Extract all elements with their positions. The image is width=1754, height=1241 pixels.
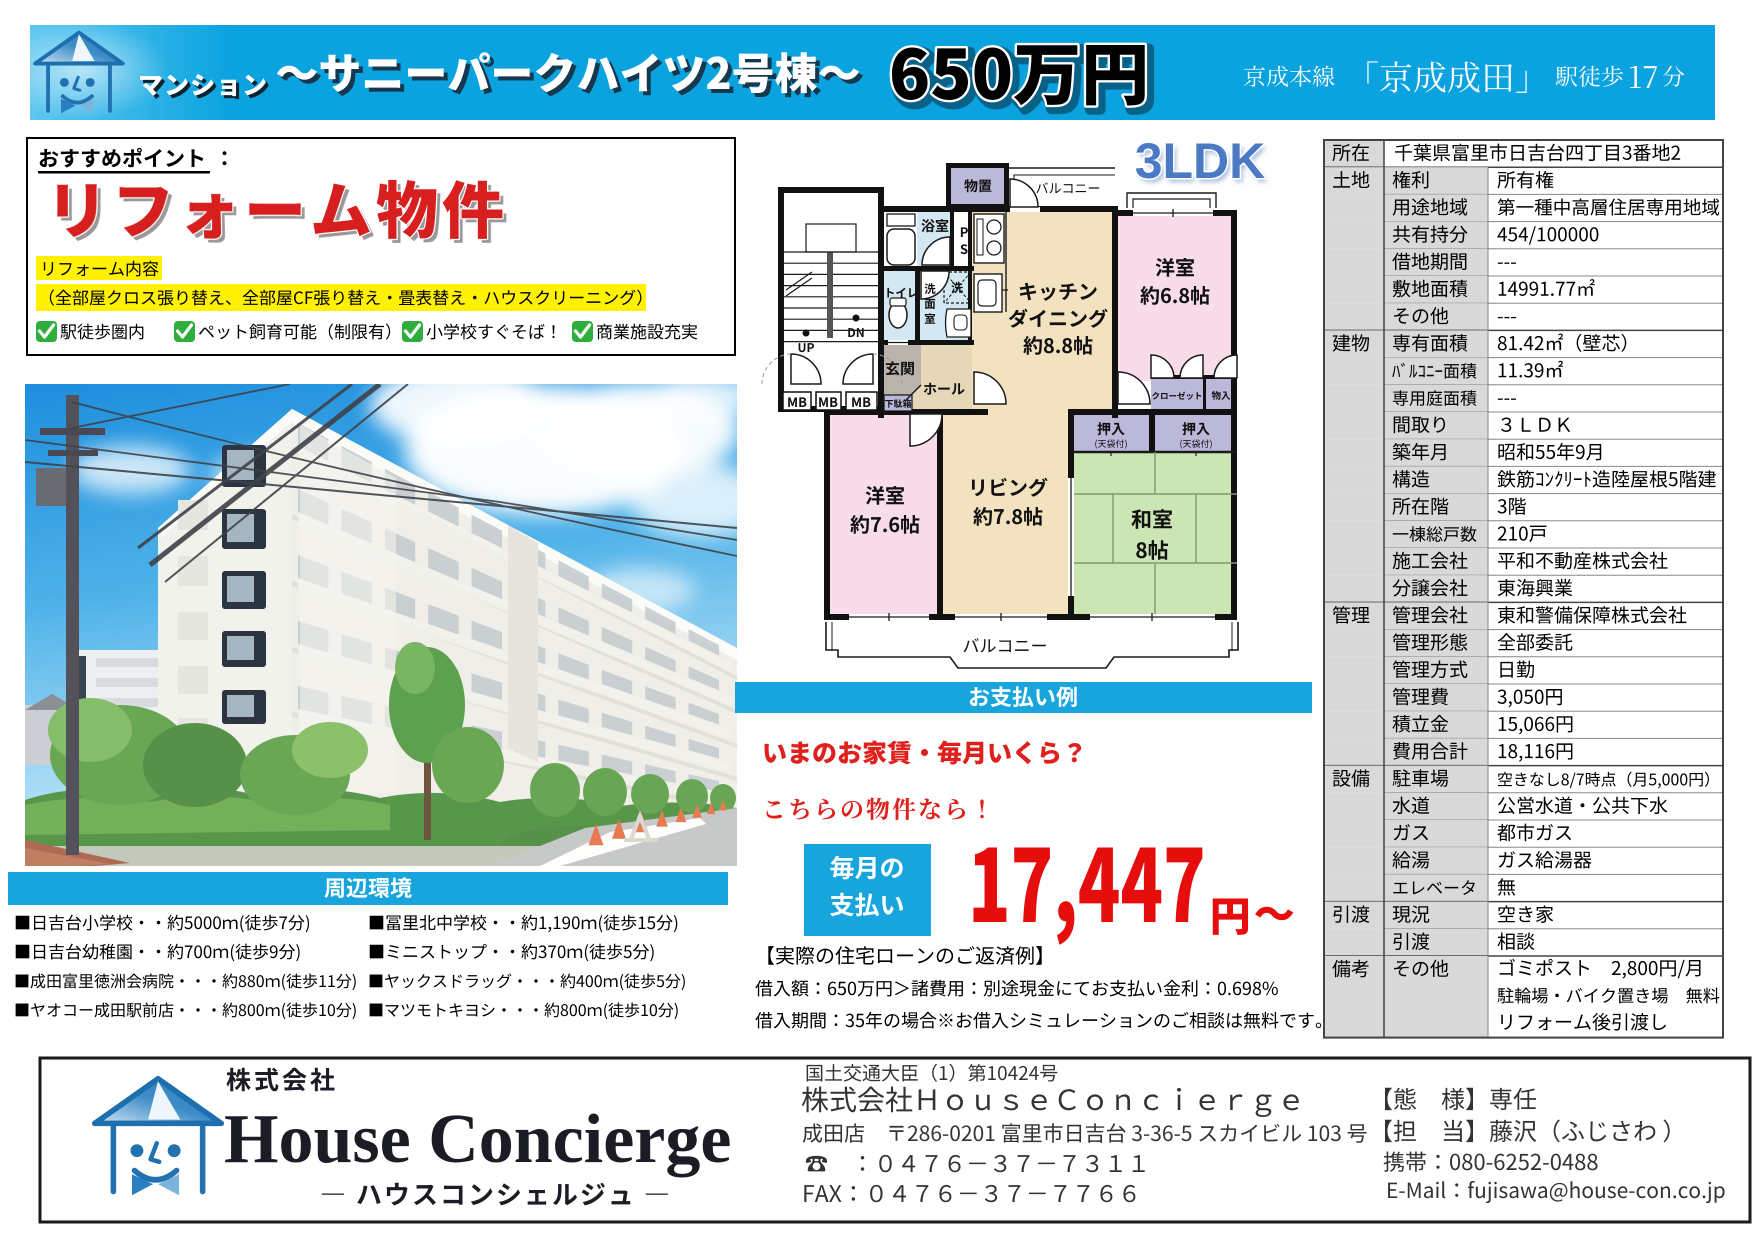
svg-text:3LDK: 3LDK	[1135, 133, 1266, 189]
svg-text:House Concierge: House Concierge	[224, 1101, 731, 1178]
